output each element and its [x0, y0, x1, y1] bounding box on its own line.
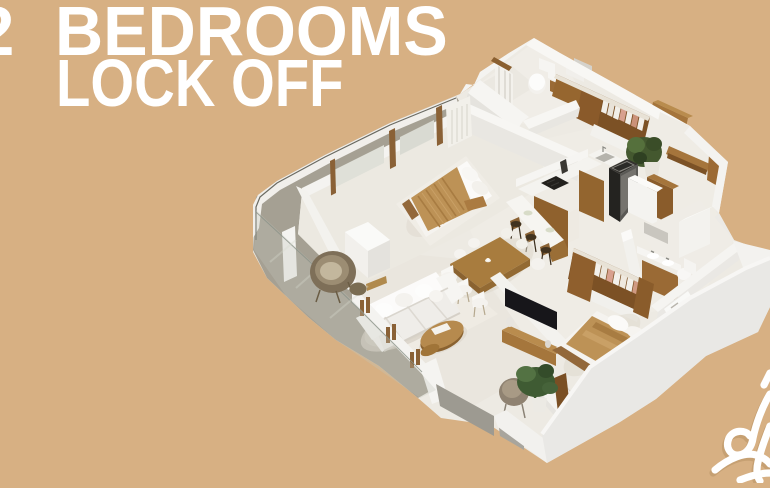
svg-text:LOCK OFF: LOCK OFF: [56, 46, 344, 121]
svg-text:2: 2: [0, 0, 14, 70]
